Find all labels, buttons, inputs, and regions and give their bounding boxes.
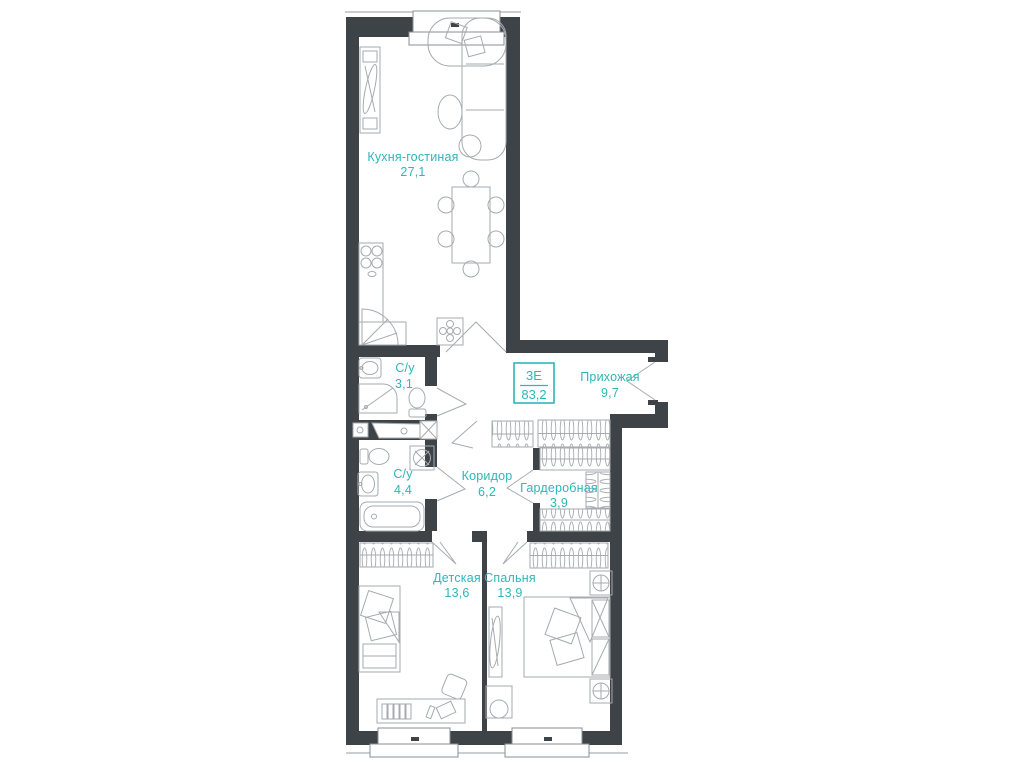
kitchen-sink bbox=[437, 318, 463, 345]
sink-icon bbox=[358, 472, 378, 496]
laptop-icon bbox=[436, 701, 456, 719]
children-room-furniture bbox=[359, 586, 468, 723]
shaft-box bbox=[420, 421, 437, 439]
room-area-bathroom-1: 3,1 bbox=[395, 377, 413, 391]
room-label-kitchen-living: Кухня-гостиная bbox=[367, 150, 458, 164]
bathroom-1-door bbox=[437, 388, 466, 416]
toilet-icon bbox=[360, 449, 389, 465]
hall-closet-large bbox=[538, 420, 610, 447]
window-bedroom bbox=[505, 728, 589, 757]
sink-icon bbox=[359, 358, 381, 378]
utility-niche bbox=[353, 421, 437, 439]
floorplan-canvas: Кухня-гостиная 27,1 С/у 3,1 Прихожая 9,7… bbox=[0, 0, 1017, 768]
window-kitchen bbox=[409, 11, 504, 45]
bathtub-icon bbox=[360, 502, 424, 531]
room-area-corridor: 6,2 bbox=[478, 485, 496, 499]
wardrobe-rack-bottom bbox=[540, 509, 610, 531]
corridor-door bbox=[452, 421, 477, 448]
room-label-children-room: Детская bbox=[433, 571, 481, 585]
console-with-plant bbox=[488, 607, 502, 677]
desk bbox=[377, 699, 465, 723]
kitchen-living-furniture bbox=[359, 18, 506, 345]
room-label-bathroom-1: С/у bbox=[395, 361, 415, 375]
desk-chair bbox=[441, 673, 468, 700]
wardrobe-rack-top bbox=[540, 448, 610, 470]
dining-table bbox=[438, 171, 504, 277]
bedroom-closet bbox=[530, 543, 608, 568]
window-children-room bbox=[370, 728, 458, 757]
shower-icon bbox=[359, 384, 397, 413]
single-bed bbox=[359, 586, 400, 672]
nightstand-top bbox=[590, 571, 612, 595]
room-area-children-room: 13,6 bbox=[444, 586, 469, 600]
room-label-wardrobe: Гардеробная bbox=[520, 481, 598, 495]
tall-cabinet bbox=[360, 47, 380, 133]
room-label-bathroom-2: С/у bbox=[393, 467, 413, 481]
children-closet bbox=[360, 543, 433, 567]
vanity-table bbox=[486, 686, 512, 718]
room-area-hallway: 9,7 bbox=[601, 386, 619, 400]
room-area-bathroom-2: 4,4 bbox=[394, 483, 412, 497]
nightstand-bottom bbox=[590, 679, 612, 703]
bedroom-door bbox=[503, 542, 527, 564]
room-area-wardrobe: 3,9 bbox=[550, 496, 568, 510]
bathroom-1-fixtures bbox=[359, 358, 426, 417]
kitchen-counter bbox=[359, 243, 463, 345]
children-room-door bbox=[432, 542, 456, 564]
floor-plan: Кухня-гостиная 27,1 С/у 3,1 Прихожая 9,7… bbox=[0, 0, 1017, 768]
hall-closet-small bbox=[492, 421, 533, 447]
room-area-bedroom: 13,9 bbox=[497, 586, 522, 600]
room-area-kitchen-living: 27,1 bbox=[400, 165, 425, 179]
kitchen-door bbox=[446, 322, 506, 352]
coffee-table bbox=[438, 95, 462, 129]
room-label-corridor: Коридор bbox=[462, 469, 513, 483]
pencil-icon bbox=[426, 706, 435, 719]
double-bed bbox=[524, 597, 610, 677]
room-label-bedroom: Спальня bbox=[484, 571, 536, 585]
apartment-info-box: 3Е 83,2 bbox=[514, 363, 554, 403]
toilet-icon bbox=[409, 388, 426, 417]
apartment-total-area: 83,2 bbox=[521, 387, 546, 402]
apartment-type-label: 3Е bbox=[526, 368, 542, 383]
room-label-hallway: Прихожая bbox=[580, 370, 640, 384]
